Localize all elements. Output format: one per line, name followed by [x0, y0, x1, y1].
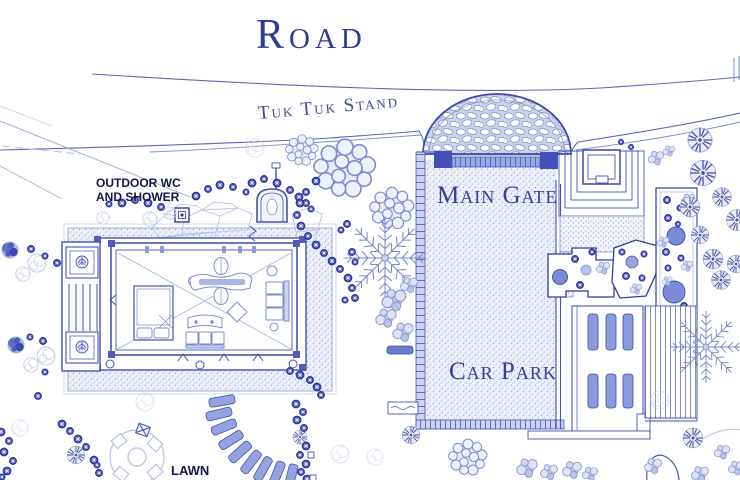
- outdoor-wc-line1: OUTDOOR WC: [96, 176, 181, 190]
- gatehouse: [559, 150, 644, 216]
- garden-table-set: [110, 423, 164, 480]
- main-gate-label: Main Gate: [437, 182, 558, 210]
- planter-plant-icon: [76, 341, 88, 353]
- outdoor-wc-label: OUTDOOR WC AND SHOWER: [96, 176, 181, 204]
- road-label: Road: [256, 11, 367, 59]
- car-park-label: Car Park: [449, 358, 557, 386]
- bench-and-console: [186, 315, 224, 348]
- gate-post-west: [434, 151, 452, 168]
- entrance-forecourt-dome: [423, 94, 571, 154]
- gate-post-east: [540, 152, 558, 169]
- stepping-stones: [205, 394, 298, 480]
- well-marker: [175, 208, 189, 222]
- stone-bench: [387, 346, 418, 414]
- planter-plant-icon: [76, 256, 88, 268]
- west-wall-segments: [416, 152, 425, 429]
- lawn-label: LAWN: [171, 463, 209, 478]
- fern-icon: [670, 311, 740, 383]
- south-wall-segments: [416, 420, 564, 429]
- faint-path: [698, 429, 740, 442]
- site-plan-page: Road Tuk Tuk Stand Main Gate Car Park OU…: [0, 0, 740, 480]
- outdoor-wc-line2: AND SHOWER: [96, 190, 181, 204]
- site-plan-drawing: [0, 0, 740, 480]
- bed: [134, 286, 173, 340]
- south-platform: [528, 431, 650, 439]
- annex-wing: [62, 242, 100, 371]
